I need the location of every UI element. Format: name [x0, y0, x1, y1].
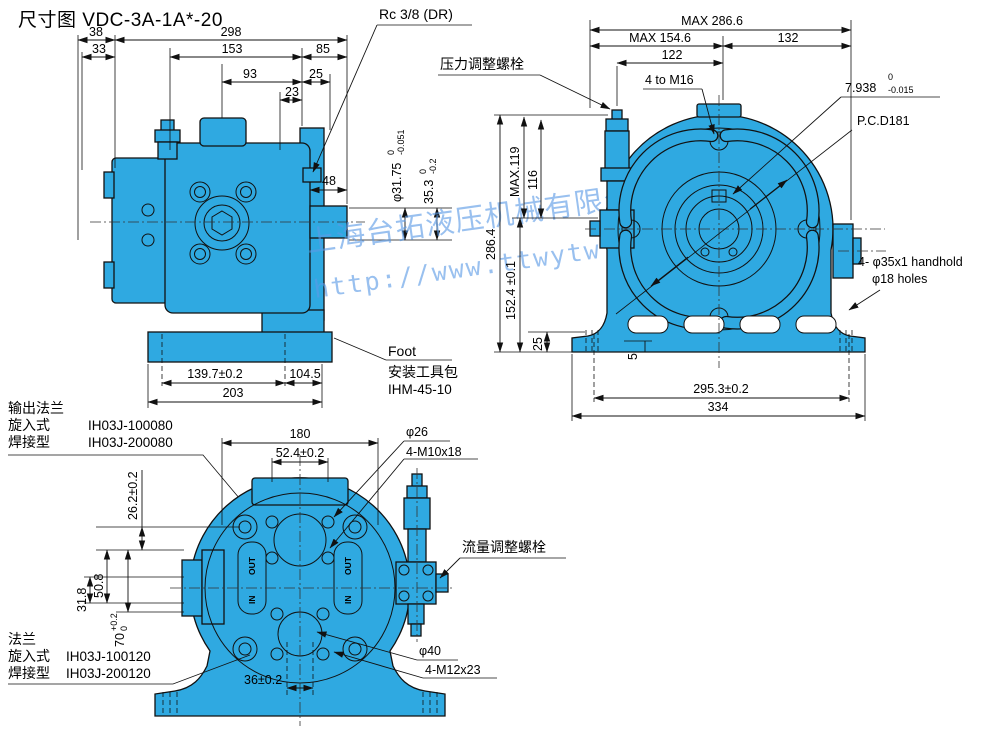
dim-180: 180 — [290, 427, 311, 441]
output-flange-title: 输出法兰 — [8, 400, 64, 416]
dim-122: 122 — [662, 48, 683, 62]
page-title: 尺寸图 VDC-3A-1A*-20 — [18, 9, 223, 31]
dim-70: 70 — [113, 633, 127, 647]
dim-23: 23 — [285, 85, 299, 99]
bottom-view-pump-body: OUT IN OUT IN — [155, 455, 455, 726]
dim-phi40: φ40 — [419, 644, 441, 658]
flange-title: 法兰 — [8, 631, 36, 647]
dim-pilot-tol-bot: -0.2 — [428, 158, 438, 174]
dim-50-8: 50.8 — [92, 574, 106, 598]
dim-203: 203 — [223, 386, 244, 400]
dim-5: 5 — [626, 353, 640, 360]
dim-shaft-dia: φ31.75 — [390, 163, 404, 202]
dim-85: 85 — [316, 42, 330, 56]
flange-type-weld: 焊接型 — [8, 434, 50, 450]
dimension-drawing-page: 尺寸图 VDC-3A-1A*-20 — [0, 0, 1000, 731]
drain-callout: Rc 3/8 (DR) — [313, 6, 472, 172]
handhold-callout: 4- φ35x1 handhold φ18 holes — [849, 255, 963, 310]
foot-callout: Foot 安装工具包 IHM-45-10 — [334, 338, 458, 397]
dim-52-4: 52.4±0.2 — [276, 446, 325, 460]
dim-153: 153 — [222, 42, 243, 56]
pressure-label: 压力调整螺栓 — [440, 56, 524, 72]
dim-36: 36±0.2 — [244, 673, 282, 687]
bottom-view: OUT IN OUT IN 180 52.4±0.2 — [8, 425, 566, 726]
flange2-pn-weld: IH03J-200120 — [66, 666, 151, 681]
dim-pilot: 35.3 — [422, 180, 436, 204]
dim-max-119: MAX.119 — [508, 146, 522, 197]
dim-116: 116 — [526, 170, 540, 190]
drain-label: Rc 3/8 (DR) — [379, 6, 453, 22]
foot-label: Foot — [388, 343, 416, 359]
dim-phi26: φ26 — [406, 425, 428, 439]
front-view-pump-body — [572, 95, 886, 368]
dim-shaft-tol-bot: -0.051 — [396, 129, 406, 155]
key-tol-top: 0 — [888, 72, 893, 82]
flange2-type-weld: 焊接型 — [8, 665, 50, 681]
flange2-pn-screw: IH03J-100120 — [66, 649, 151, 664]
dim-298: 298 — [221, 25, 242, 39]
dim-295-3: 295.3±0.2 — [693, 382, 749, 396]
handhold-label-2: φ18 holes — [872, 272, 927, 286]
flange-pn-screw: IH03J-100080 — [88, 418, 173, 433]
port-out-right: OUT — [343, 556, 353, 575]
flow-callout: 流量调整螺栓 — [440, 539, 566, 578]
dim-139-7: 139.7±0.2 — [187, 367, 243, 381]
flange-type-screw: 旋入式 — [8, 417, 50, 433]
dim-31-8: 31.8 — [75, 588, 89, 612]
pcd-label: P.C.D181 — [857, 114, 910, 128]
dim-93: 93 — [243, 67, 257, 81]
dim-104-5: 104.5 — [289, 367, 320, 381]
port-out-left: OUT — [247, 556, 257, 575]
port-in-right: IN — [343, 596, 353, 605]
dim-max-154-6: MAX 154.6 — [629, 31, 691, 45]
dim-25-side: 25 — [309, 67, 323, 81]
dim-shaft-tol-top: 0 — [386, 150, 396, 155]
key-value: 7.938 — [845, 81, 876, 95]
dim-max-286-6: MAX 286.6 — [681, 14, 743, 28]
dim-48: 48 — [322, 174, 336, 188]
kit-label-1: 安装工具包 — [388, 364, 458, 380]
dim-26-2: 26.2±0.2 — [126, 471, 140, 520]
handhold-label-1: 4- φ35x1 handhold — [858, 255, 963, 269]
dim-4-m10x18: 4-M10x18 — [406, 445, 462, 459]
dim-70-tol-top: +0.2 — [109, 613, 119, 631]
dim-38: 38 — [89, 25, 103, 39]
drawing-svg: 尺寸图 VDC-3A-1A*-20 — [0, 0, 1000, 731]
key-tol-bot: -0.015 — [888, 85, 914, 95]
dim-25-front: 25 — [531, 337, 545, 351]
flow-label: 流量调整螺栓 — [462, 539, 546, 555]
dim-132: 132 — [778, 31, 799, 45]
dim-334: 334 — [708, 400, 729, 414]
side-view: 38 298 33 153 85 93 25 23 48 139.7±0.2 1… — [8, 6, 472, 505]
dim-4-m12x23: 4-M12x23 — [425, 663, 481, 677]
pressure-callout: 压力调整螺栓 — [438, 56, 610, 109]
dim-152-4: 152.4 ±0.1 — [504, 261, 518, 320]
port-in-left: IN — [247, 596, 257, 605]
dim-33: 33 — [92, 42, 106, 56]
m16-label: 4 to M16 — [645, 73, 694, 87]
dim-286-4: 286.4 — [484, 229, 498, 260]
dim-70-tol-bot: 0 — [119, 626, 129, 631]
dim-pilot-tol-top: 0 — [418, 169, 428, 174]
flange2-type-screw: 旋入式 — [8, 648, 50, 664]
flange-pn-weld: IH03J-200080 — [88, 435, 173, 450]
kit-label-2: IHM-45-10 — [388, 382, 452, 397]
